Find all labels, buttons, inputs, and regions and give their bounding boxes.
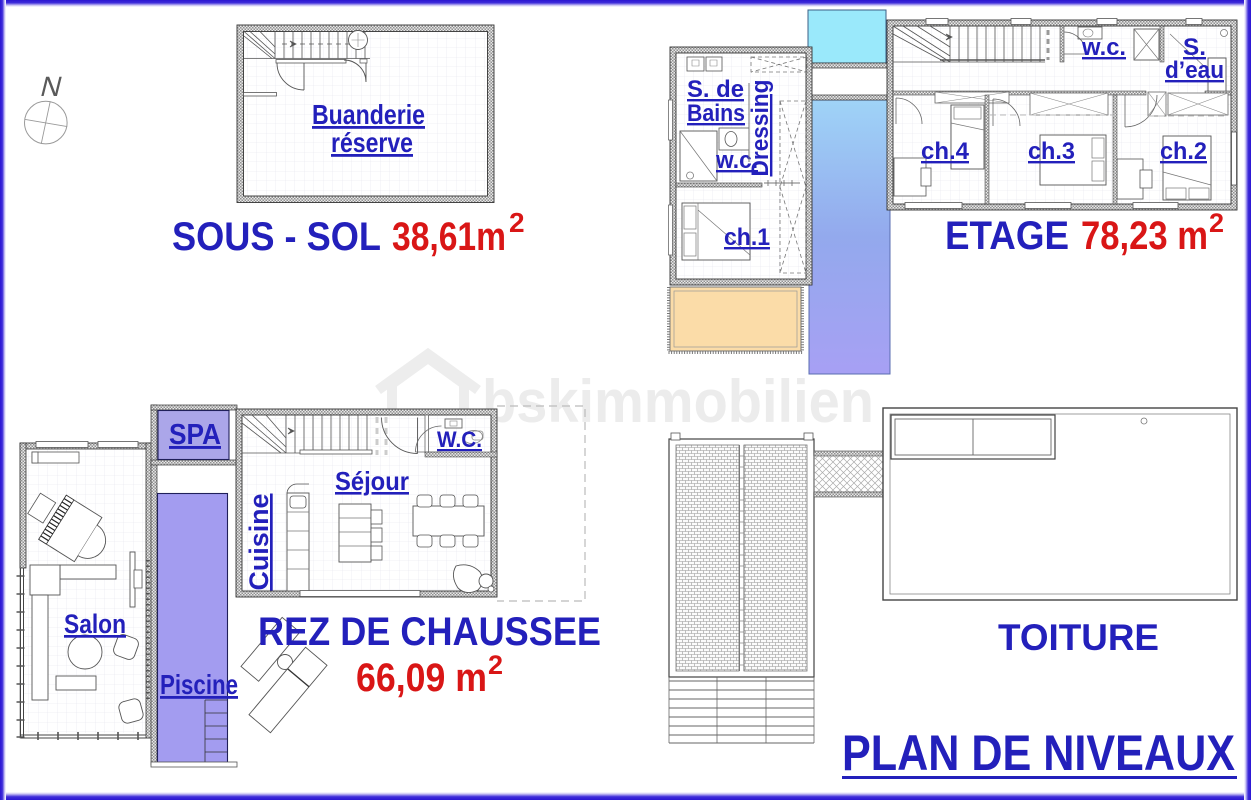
svg-text:d’eau: d’eau <box>1165 57 1224 84</box>
svg-text:PLAN DE NIVEAUX: PLAN DE NIVEAUX <box>842 725 1235 781</box>
svg-text:Cuisine: Cuisine <box>244 494 274 591</box>
svg-text:Dressing: Dressing <box>747 80 774 177</box>
svg-text:ch.1: ch.1 <box>724 224 770 251</box>
svg-text:W.C.: W.C. <box>437 427 482 452</box>
svg-text:Bains: Bains <box>687 100 745 127</box>
svg-text:2: 2 <box>1209 208 1224 238</box>
svg-text:ch.3: ch.3 <box>1028 138 1075 165</box>
svg-text:TOITURE: TOITURE <box>998 617 1159 658</box>
svg-text:Buanderie: Buanderie <box>312 99 425 130</box>
svg-text:ETAGE: ETAGE <box>945 214 1069 258</box>
svg-text:ch.2: ch.2 <box>1160 138 1207 165</box>
svg-text:bskimmobilien: bskimmobilien <box>482 368 874 435</box>
svg-text:78,23 m: 78,23 m <box>1081 214 1208 258</box>
svg-text:ch.4: ch.4 <box>921 138 970 165</box>
svg-text:2: 2 <box>509 207 525 238</box>
svg-text:SOUS - SOL: SOUS - SOL <box>172 215 381 259</box>
svg-text:2: 2 <box>488 650 503 680</box>
svg-text:REZ DE CHAUSSEE: REZ DE CHAUSSEE <box>258 610 601 654</box>
svg-text:Piscine: Piscine <box>160 669 238 700</box>
svg-text:Salon: Salon <box>64 609 126 639</box>
svg-text:38,61m: 38,61m <box>392 215 506 259</box>
svg-text:S. de: S. de <box>687 76 744 103</box>
svg-text:66,09 m: 66,09 m <box>356 656 487 700</box>
svg-text:réserve: réserve <box>331 127 413 158</box>
svg-text:w.c.: w.c. <box>1081 34 1126 61</box>
svg-text:Séjour: Séjour <box>335 466 409 496</box>
svg-text:SPA: SPA <box>169 419 221 451</box>
